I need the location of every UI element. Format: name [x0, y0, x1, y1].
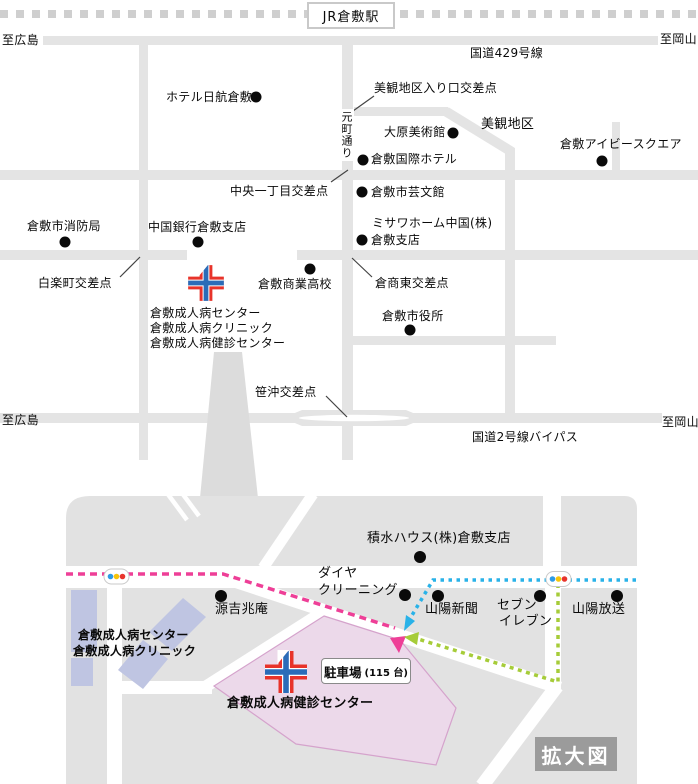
dot-fire-dept — [60, 237, 71, 248]
dot-daiya — [399, 589, 411, 601]
label-seven-1: セブン — [497, 598, 537, 614]
label-hospital-lower-1: 倉敷成人病センター — [78, 628, 189, 642]
parking-label-box: 駐車場 (115 台) — [321, 658, 411, 684]
label-bypass: 国道2号線バイパス — [472, 430, 578, 444]
parking-capacity: (115 台) — [365, 664, 409, 679]
bypass-median — [299, 415, 409, 421]
to-hiroshima-bottom: 至広島 — [2, 413, 39, 427]
label-misawa-1: ミサワホーム中国(株) — [372, 216, 492, 230]
label-sekisui: 積水ハウス(株)倉敷支店 — [367, 531, 511, 547]
leader-kurasho-east — [352, 258, 372, 277]
label-kenshin-center: 倉敷成人病健診センター — [227, 696, 373, 712]
label-hotel-nikko: ホテル日航倉敷 — [166, 90, 252, 104]
label-hospital-lower-2: 倉敷成人病クリニック — [73, 644, 196, 658]
label-sasaoki: 笹沖交差点 — [255, 385, 317, 399]
street-north — [543, 496, 561, 568]
label-chuo-itchome: 中央一丁目交差点 — [230, 184, 328, 198]
callout-wedge — [200, 352, 258, 498]
signal-red-light — [562, 576, 568, 582]
route429-label: 国道429号線 — [470, 46, 543, 60]
building-west-2 — [71, 658, 93, 686]
label-kurasho-east: 倉商東交差点 — [375, 276, 449, 290]
label-city-hall: 倉敷市役所 — [382, 309, 444, 323]
dot-sanyo-shimbun — [432, 590, 444, 602]
signal-blue-light — [550, 576, 556, 582]
dot-sanyo-broadcast — [611, 590, 623, 602]
label-ivy-square: 倉敷アイビースクエア — [560, 137, 682, 151]
dot-shogyo-hs — [305, 264, 316, 275]
label-fire-dept: 倉敷市消防局 — [27, 219, 101, 233]
label-daiya-1: ダイヤ — [318, 566, 358, 582]
to-okayama-bottom: 至岡山 — [662, 415, 698, 429]
dot-geibunkan — [357, 187, 368, 198]
signal-yellow-light — [114, 574, 120, 580]
dot-hotel-nikko — [251, 92, 262, 103]
label-hakuraku: 白楽町交差点 — [38, 276, 112, 290]
label-chugoku-bank: 中国銀行倉敷支店 — [148, 220, 246, 234]
upper-roads — [0, 36, 698, 460]
label-motomachi-street: 元町通り — [340, 109, 354, 161]
label-shogyo-hs: 倉敷商業高校 — [258, 277, 332, 291]
label-sanyo-broadcast: 山陽放送 — [572, 602, 625, 618]
label-bikan-district: 美観地区 — [481, 117, 534, 133]
signal-blue-light — [108, 574, 114, 580]
building-west-1 — [71, 590, 97, 652]
road-vertical-west — [139, 43, 148, 460]
label-genkitchoan: 源吉兆庵 — [215, 602, 268, 618]
traffic-signal-west — [104, 569, 129, 584]
label-daiya-2: クリーニング — [318, 583, 398, 599]
parking-label: 駐車場 — [324, 662, 362, 681]
dot-sekisui — [414, 551, 426, 563]
traffic-signal-east — [546, 572, 571, 587]
label-hospital-upper-2: 倉敷成人病クリニック — [150, 321, 273, 336]
to-hiroshima-top: 至広島 — [2, 33, 39, 47]
label-hospital-upper-3: 倉敷成人病健診センター — [150, 336, 285, 351]
label-misawa-2: 倉敷支店 — [371, 233, 420, 247]
label-kokusai-hotel: 倉敷国際ホテル — [371, 152, 457, 166]
label-sanyo-shimbun: 山陽新聞 — [425, 602, 478, 618]
enlarged-map-badge: 拡大図 — [535, 737, 617, 771]
dot-kokusai-hotel — [358, 155, 369, 166]
jr-station-box: JR倉敷駅 — [307, 2, 395, 29]
road-bikan-north — [354, 107, 448, 116]
dot-genkitchoan — [215, 590, 227, 602]
label-seven-2: イレブン — [499, 614, 552, 630]
to-okayama-top: 至岡山 — [660, 32, 697, 46]
dot-misawa — [357, 235, 368, 246]
signal-red-light — [120, 574, 126, 580]
label-geibunkan: 倉敷市芸文館 — [371, 185, 445, 199]
street-southwest — [118, 681, 212, 694]
dot-ohara-museum — [448, 128, 459, 139]
kurashiki-access-map: { "station": { "label": "JR倉敷駅" }, "uppe… — [0, 0, 698, 784]
label-ohara-museum: 大原美術館 — [384, 125, 446, 139]
dot-chugoku-bank — [193, 237, 204, 248]
road-motomachi — [342, 42, 353, 460]
dot-city-hall — [405, 325, 416, 336]
label-hospital-upper-1: 倉敷成人病センター — [150, 306, 261, 321]
signal-yellow-light — [556, 576, 562, 582]
road-cityhall — [352, 336, 556, 345]
road-vertical-east — [505, 148, 515, 413]
label-bikan-entrance: 美観地区入り口交差点 — [374, 81, 497, 95]
dot-ivy-square — [597, 156, 608, 167]
